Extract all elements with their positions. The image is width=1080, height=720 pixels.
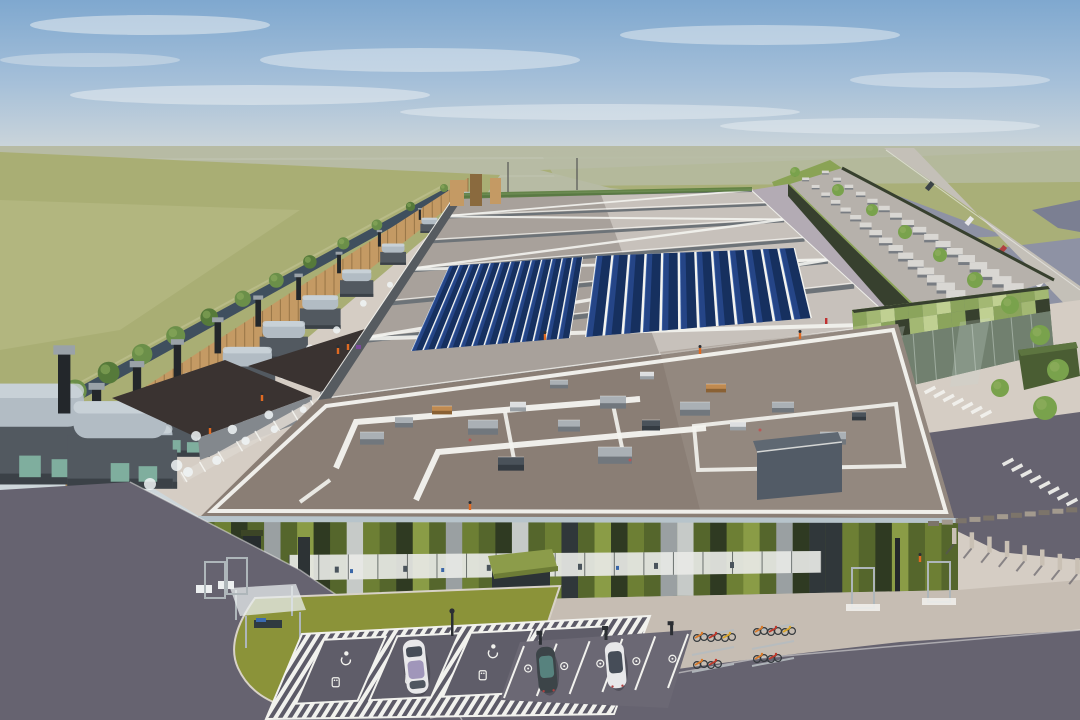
right-road <box>874 412 1080 560</box>
screen-box-top <box>753 432 842 452</box>
entrance-canopy-edge <box>494 566 558 579</box>
substation-roof-1 <box>112 360 312 438</box>
dark-roof-buildings <box>112 328 600 460</box>
stair-rack-1 <box>852 568 874 608</box>
timber-fence <box>66 178 468 508</box>
pipe-rack-band <box>182 394 334 478</box>
cooling-tower-2 <box>470 174 482 206</box>
facade-shadow <box>198 590 958 618</box>
parking-standard <box>500 621 692 708</box>
roof-walkway-4 <box>612 400 624 457</box>
equipment-rack-2 <box>227 558 247 594</box>
facade-window-band <box>289 551 821 580</box>
side-door-2 <box>298 537 310 589</box>
pavilion <box>852 286 1080 398</box>
roof-walkway-5 <box>694 404 904 470</box>
right-hall-roof <box>790 168 1054 318</box>
screen-box-side <box>757 442 842 500</box>
roof-equipment <box>360 372 866 471</box>
shelter-bench <box>254 620 282 628</box>
chevrons-a <box>924 386 992 419</box>
rack-pad-1 <box>846 604 880 611</box>
court-floor <box>752 184 925 324</box>
pond-far <box>1032 200 1080 232</box>
berm-trees <box>790 167 1069 420</box>
roof-bays <box>318 189 898 406</box>
rack-pad-2 <box>922 598 956 605</box>
canal-verge <box>4 185 444 424</box>
berm <box>772 160 1080 432</box>
timber-wall <box>66 178 468 508</box>
facade-base <box>198 519 958 606</box>
generator-service-strip <box>140 200 505 520</box>
right-hall-near-wall <box>788 184 925 352</box>
standard-stalls <box>504 621 688 698</box>
substation-wall-2 <box>320 352 438 410</box>
right-hall-far-fascia <box>842 168 1054 280</box>
front-roof-surface <box>198 324 955 521</box>
entrance-canopy <box>488 549 558 578</box>
pavilion-glass <box>852 286 1054 398</box>
picnic-table-2 <box>218 581 234 589</box>
side-door-canopy <box>241 530 263 536</box>
main-roof-light-half <box>600 190 898 355</box>
facade-front-items <box>205 558 956 611</box>
lawn <box>234 586 560 712</box>
equipment-rack-1 <box>205 562 225 598</box>
fields <box>0 148 1080 448</box>
screen-box-trim <box>757 442 842 452</box>
solar-array-b <box>585 248 812 337</box>
right-field <box>540 150 1080 440</box>
side-door-1 <box>243 533 261 590</box>
canal-strip <box>0 184 452 441</box>
standard-cars <box>535 641 630 696</box>
road-bottom <box>430 630 1080 720</box>
road-left <box>0 482 462 720</box>
right-hall <box>788 168 1054 352</box>
pipe-rack-ticks <box>181 390 335 482</box>
hatched-zone <box>266 616 650 719</box>
timber-planks <box>66 178 468 508</box>
screen-box <box>753 432 842 500</box>
shelter-roof <box>230 584 306 616</box>
lamppost-head <box>449 608 454 613</box>
court-strip <box>752 184 925 324</box>
curb-left <box>130 482 462 720</box>
right-ground <box>874 300 1080 590</box>
parking-accessible <box>266 608 650 719</box>
curb-bottom <box>430 630 1080 718</box>
office-facade <box>198 516 958 618</box>
roof-walkway-2 <box>416 428 706 500</box>
roof-front-fascia <box>318 324 902 406</box>
hall-west-wall <box>318 196 462 406</box>
substation-roof-2 <box>248 328 438 392</box>
facade-pillar <box>895 538 900 596</box>
shelter-bench-item <box>256 618 266 622</box>
front-roof-light <box>660 324 955 521</box>
stair-rack-2 <box>928 562 950 602</box>
chevrons-b <box>1002 458 1078 507</box>
plain-texture <box>0 156 1080 222</box>
right-hall-units <box>802 171 1024 310</box>
lawn-area <box>196 581 560 712</box>
roof-walkway-border <box>212 330 946 512</box>
accessible-car <box>401 638 433 697</box>
ground <box>0 386 1080 720</box>
highway-surface <box>884 148 1080 320</box>
pavilion-hedge-box-top <box>1018 342 1078 356</box>
standard-zone <box>500 630 692 708</box>
left-field <box>0 152 500 448</box>
bike-shelter <box>230 584 306 648</box>
generator-steam <box>144 211 472 490</box>
people <box>209 318 922 562</box>
pipe-rack <box>181 390 335 482</box>
substation-roof-3 <box>430 330 600 366</box>
pipe-steam <box>191 328 562 441</box>
ponds <box>618 186 1080 332</box>
solar-array-a <box>411 257 583 351</box>
substation-wall-1 <box>198 396 312 460</box>
generator-units <box>0 186 471 489</box>
front-roof-paths <box>212 330 946 512</box>
clouds <box>0 15 1050 134</box>
roof-left-edge <box>318 196 455 400</box>
horizon-band <box>0 146 1080 258</box>
apron-main <box>198 580 1080 720</box>
cooling-tower-1 <box>450 180 464 206</box>
roof-top-hedge <box>455 187 752 199</box>
pond-right <box>915 238 1080 332</box>
roof-walkway-3 <box>505 412 516 470</box>
facility-aerial-rendering <box>0 0 1080 720</box>
picnic-table-1 <box>196 585 212 593</box>
front-roof <box>198 324 955 521</box>
roof-walkway-1 <box>336 399 640 468</box>
highway-cars <box>925 181 1045 288</box>
entrance-glass <box>492 558 550 604</box>
roof-right-edge <box>752 190 898 324</box>
main-roof <box>318 158 902 406</box>
highway-edge <box>886 150 1080 290</box>
berm-green <box>772 160 1080 432</box>
right-field-far <box>540 148 1080 186</box>
pavilion-hedge-box <box>1018 342 1080 390</box>
entrance <box>488 549 558 604</box>
right-apron <box>898 300 1080 590</box>
perimeter-fence <box>928 506 1080 584</box>
distant-plain <box>0 146 1080 258</box>
highway <box>884 148 1080 320</box>
sky <box>0 0 1080 152</box>
cooling-tower-3 <box>490 178 501 204</box>
roof-towers <box>450 158 577 206</box>
facade-parapet <box>198 516 958 523</box>
canal <box>0 188 452 440</box>
left-field-patch <box>0 200 300 350</box>
lamppost <box>451 612 454 636</box>
bike-racks <box>692 624 795 672</box>
main-roof-surface <box>318 190 898 400</box>
rendering-canvas <box>0 0 1080 720</box>
accessible-stalls <box>296 626 606 703</box>
apron-left-wedge <box>105 505 260 625</box>
generator-row <box>0 186 505 520</box>
facade-panels <box>198 519 958 606</box>
pavilion-checker <box>852 286 1050 343</box>
pond-large <box>618 186 1005 252</box>
pavilion-body <box>852 286 1054 398</box>
canal-bushes <box>0 184 448 441</box>
roof-walkway-6 <box>300 480 330 502</box>
